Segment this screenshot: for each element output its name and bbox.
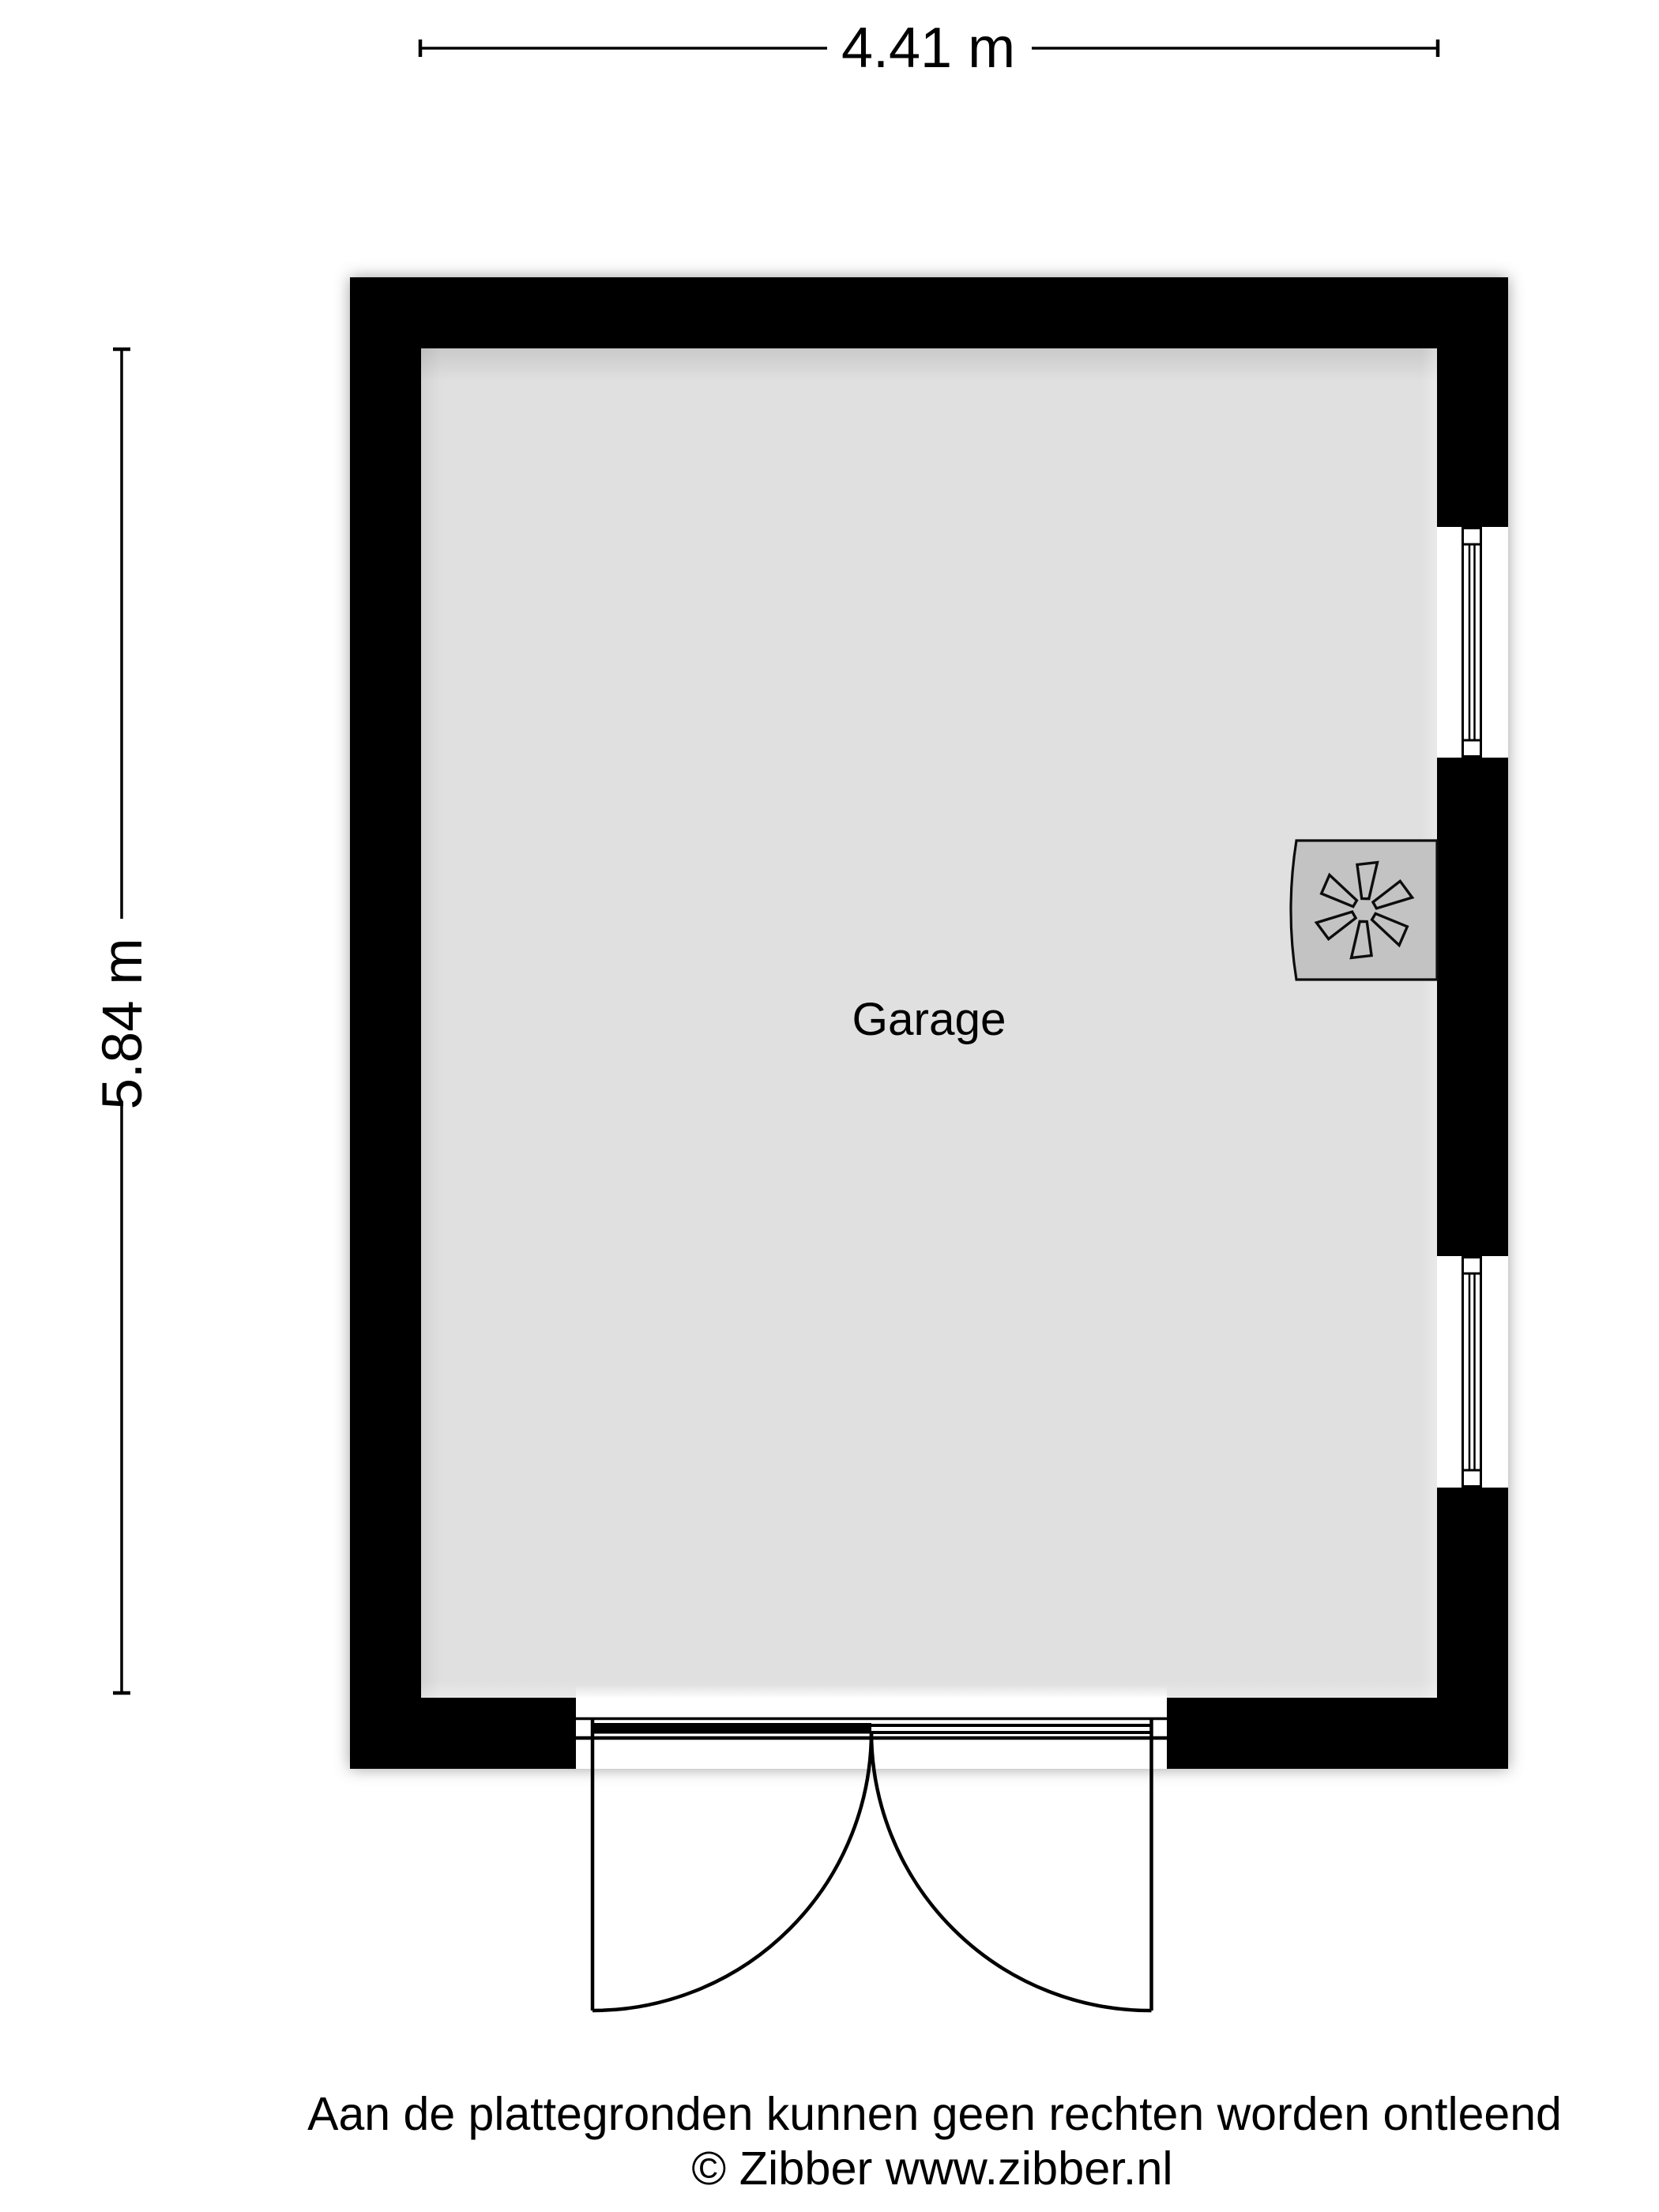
svg-text:5.84 m: 5.84 m xyxy=(92,938,154,1109)
svg-text:4.41 m: 4.41 m xyxy=(841,17,1015,80)
svg-text:Aan de plattegronden kunnen ge: Aan de plattegronden kunnen geen rechten… xyxy=(307,2088,1562,2140)
svg-text:© Zibber www.zibber.nl: © Zibber www.zibber.nl xyxy=(691,2142,1172,2195)
svg-text:Garage: Garage xyxy=(852,994,1006,1045)
